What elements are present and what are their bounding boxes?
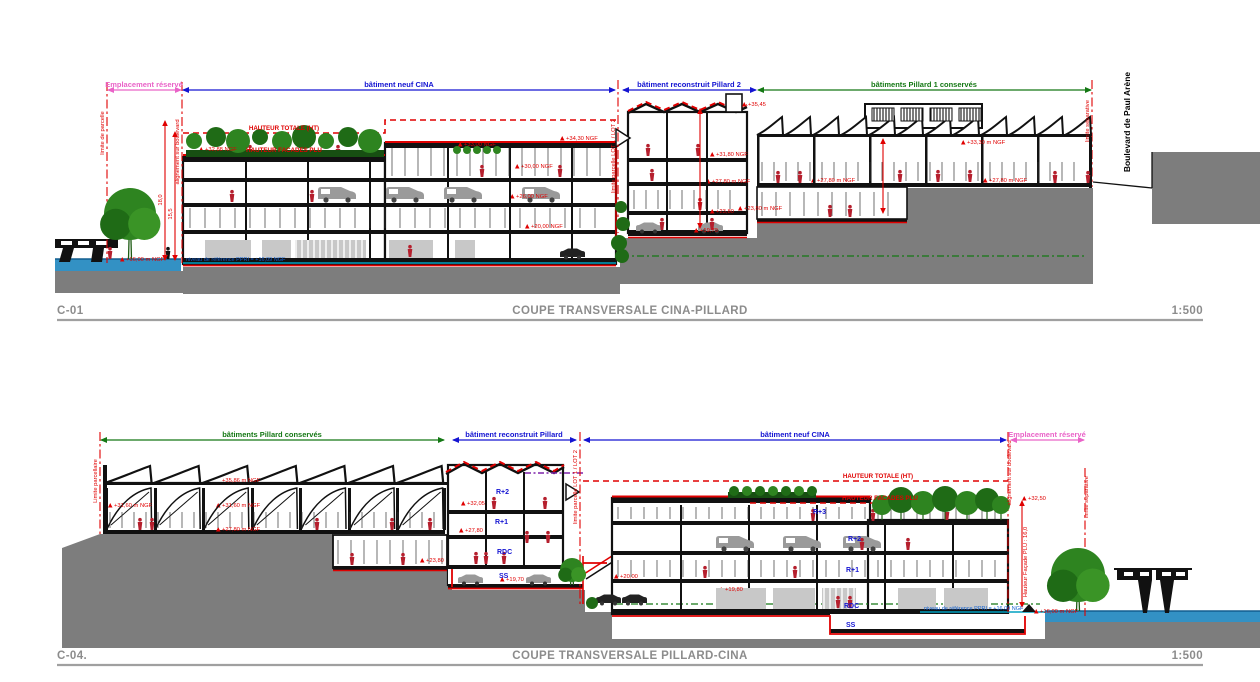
level-label: +35,45 (748, 102, 766, 108)
sawtooth-roof (981, 117, 1007, 135)
floor-label: R+1 (495, 519, 508, 526)
arrowhead-up (1019, 500, 1025, 506)
level-label: +27,80 m NGF (989, 178, 1028, 184)
storage-box (773, 588, 815, 609)
column (396, 488, 399, 530)
level-label: +19,70 (700, 228, 718, 234)
zone-label-pillard-conserves-bottom: bâtiments Pillard conservés (222, 430, 322, 439)
column (813, 137, 816, 183)
level-label: +34,30 NGF (566, 136, 598, 142)
roof-tree (186, 133, 202, 149)
limit-label: limite parcelle LOT 1 / LOT 2 (611, 119, 617, 193)
storage-box (205, 240, 251, 258)
floor-label: SS (846, 622, 856, 629)
level-label: +23,80 m NGF (744, 206, 783, 212)
terrain-top-boulevard-block (1152, 152, 1260, 224)
column (369, 157, 371, 258)
zone-label-pillard-reconstruit-bottom: bâtiment reconstruit Pillard (465, 430, 563, 439)
section-title-c04: COUPE TRANSVERSALE PILLARD-CINA (512, 650, 747, 662)
terrain-top-sheds-right (907, 188, 1093, 284)
cina-top-slab2 (183, 203, 616, 207)
limit-label: limite parcelle LOT 1 / LOT 2 (573, 450, 579, 524)
pillard-rec-rdcfloor (448, 565, 563, 569)
sawtooth-roof (813, 117, 839, 135)
terrain-top-left (55, 271, 183, 293)
level-label: +31,80 NGF (716, 152, 748, 158)
bush (611, 235, 627, 251)
hauteur-facades-label-bottom: HAUTEUR FACADES PLU (842, 495, 918, 502)
cina-bottom-slab2 (612, 551, 1008, 555)
sheds-lower-base (757, 219, 907, 222)
sheds-bottom-room-base (333, 566, 447, 570)
hauteur-totale-label-bottom: HAUTEUR TOTALE (HT) (843, 473, 913, 480)
cina-top-roofband-right (385, 143, 616, 148)
pillard-rec-slab1 (448, 510, 563, 514)
bush (586, 597, 598, 609)
arrowhead-right (750, 87, 757, 93)
floor-label: R+2 (496, 489, 509, 496)
cina-bottom-slab3 (612, 579, 1008, 583)
column (485, 472, 487, 565)
column (348, 488, 351, 530)
roof-shrub (453, 146, 461, 154)
pillard-rec-ssbase (448, 584, 583, 588)
dim-label: 18,0 (158, 194, 164, 205)
bush (615, 201, 627, 213)
sheds-top-hall (755, 135, 1092, 185)
hauteur-totale-label-top: HAUTEUR TOTALE (HT) (249, 125, 319, 132)
level-label: +31,60 m NGF (222, 503, 261, 509)
limit-label: alignement sur boulevard (1007, 440, 1013, 505)
arrowhead-up (162, 120, 168, 126)
column (680, 505, 682, 609)
level-label: +16,00 m NGF (126, 257, 165, 263)
cina-top-roofband-left (183, 157, 385, 162)
arrowhead-left (182, 87, 189, 93)
roof-tree (338, 127, 358, 147)
limit-label: limite séparative (1085, 100, 1091, 142)
level-label: +27,80 m NGF (712, 179, 751, 185)
zone-label-cina-top: bâtiment neuf CINA (364, 80, 434, 89)
roof-tree (206, 127, 226, 147)
cina-bottom-ss (830, 614, 1025, 630)
roof-shrub (781, 486, 791, 496)
roof-tree (932, 486, 958, 512)
arrowhead-left (622, 87, 629, 93)
sections-drawing: Emplacement réservé bâtiment neuf CINA b… (0, 0, 1260, 682)
ground-marker-bottom (1022, 604, 1036, 612)
arrowhead-left (100, 437, 107, 443)
level-label: +32,88 NGF (205, 147, 237, 153)
section-scale-c01: 1:500 (1172, 305, 1203, 317)
hauteur-facades-label-top: HAUTEUR FACADES PLU (246, 147, 322, 154)
sawtooth-roof (1009, 117, 1035, 135)
roof-tree (358, 129, 382, 153)
section-id-c01: C-01 (57, 305, 84, 317)
hatched-window (872, 108, 894, 121)
arrowhead-left (757, 87, 764, 93)
section-title-c01: COUPE TRANSVERSALE CINA-PILLARD (512, 305, 747, 317)
column (884, 525, 886, 609)
roof-shrub (807, 486, 817, 496)
floor-label: R+2 (848, 536, 861, 543)
level-label: +20,00 (620, 574, 638, 580)
arrowhead-right (438, 437, 445, 443)
storage-box (455, 240, 475, 258)
column (447, 143, 449, 258)
column (299, 488, 302, 530)
cina-top-slab3 (183, 230, 616, 234)
level-label: +27,80 m NGF (222, 527, 261, 533)
level-label: +19,70 (506, 577, 524, 583)
floor-label: RDC (844, 603, 859, 610)
terrain-top-center (183, 267, 620, 294)
floor-label: R+3 (813, 509, 826, 516)
column (523, 472, 525, 565)
level-flag (1022, 496, 1027, 501)
level-label: +33,30 m NGF (967, 140, 1006, 146)
zone-label-emplacement-reserve-top: Emplacement réservé (105, 80, 183, 89)
hauteur-facade-plu-label: Hauteur Façade PLU : 16,0 (1023, 527, 1029, 598)
cina-bottom-ssbase (830, 629, 1025, 633)
person-figure (108, 247, 113, 259)
arrowhead-right (1000, 437, 1007, 443)
level-label: +16,00 m NGF (1040, 609, 1079, 615)
road-slope-line (1093, 182, 1152, 188)
column (251, 488, 254, 530)
bridge-bottom-right (1114, 569, 1192, 613)
sheds-bottom-floor (105, 530, 445, 534)
section-id-c04: C-04. (57, 650, 87, 662)
level-label: +23,80 (426, 558, 444, 564)
limit-label: limite de parcelle (100, 111, 106, 155)
level-label: +26,00 NGF (516, 194, 548, 200)
zone-label-cina-bottom: bâtiment neuf CINA (760, 430, 830, 439)
arrowhead-right (609, 87, 616, 93)
level-label: +35,86 m NGF (222, 478, 261, 484)
level-label: +27,80 m NGF (817, 178, 856, 184)
floor-label: R+1 (846, 567, 859, 574)
bush (616, 217, 630, 231)
terrain-bottom-right (1045, 622, 1260, 648)
terrain-top-sheds-left (757, 222, 907, 284)
column (757, 137, 760, 183)
ppri-reference-top: niveau de référence PPRI = +16,09 NGF (186, 257, 286, 263)
sawtooth-roof (1037, 117, 1063, 135)
street-label: Boulevard de Paul Arène (1122, 72, 1132, 173)
ppri-reference-bottom: niveau de référence PPRI = +16,09 NGF (924, 606, 1024, 612)
column (154, 488, 157, 530)
limit-label: limite séparative (1084, 476, 1090, 518)
pillard2-stair-overrun (726, 94, 742, 112)
limit-label: alignement sur boulevard (175, 119, 181, 184)
arrowhead-left (452, 437, 459, 443)
column (666, 112, 668, 230)
cina-bottom-roofband-left (612, 498, 870, 503)
hatched-window (901, 108, 923, 121)
cina-bottom-slab1 (612, 521, 1008, 525)
sawtooth-roof (785, 117, 811, 135)
level-label: +30,00 NGF (521, 164, 553, 170)
terrain-top-pillard2 (620, 238, 757, 284)
hatched-window (930, 108, 952, 121)
column (925, 137, 928, 183)
pillard-rec-slab2 (448, 535, 563, 539)
zone-label-pillard2-top: bâtiment reconstruit Pillard 2 (637, 80, 741, 89)
roof-shrub (729, 486, 739, 496)
zone-label-pillard1-top: bâtiments Pillard 1 conservés (871, 80, 977, 89)
column (202, 488, 205, 530)
level-flag (560, 136, 565, 141)
zone-label-emplacement-reserve-bottom: Emplacement réservé (1008, 430, 1086, 439)
cina-top-slab1 (183, 178, 616, 182)
column (571, 143, 573, 258)
level-label: +31,60 m NGF (114, 503, 153, 509)
storage-box (262, 240, 291, 258)
arrowhead-right (570, 437, 577, 443)
floor-label: RDC (497, 549, 512, 556)
column (706, 112, 708, 230)
level-label: +20,00 NGF (531, 224, 563, 230)
pillard2-slab1 (628, 158, 747, 162)
column (105, 488, 108, 530)
sawtooth-roof (841, 117, 867, 135)
sawtooth-roof (757, 117, 783, 135)
roof-shrub (768, 486, 778, 496)
level-label: +32,05 (467, 501, 485, 507)
arrowhead-left (583, 437, 590, 443)
tree (1047, 548, 1110, 611)
section-scale-c04: 1:500 (1172, 650, 1203, 662)
column (443, 488, 446, 530)
storage-box (295, 240, 366, 258)
bush (615, 249, 629, 263)
roof-shrub (755, 486, 765, 496)
roof-shrub (742, 486, 752, 496)
dim-label: 15,5 (168, 208, 174, 219)
arrowhead-right (1085, 87, 1092, 93)
column (816, 505, 818, 609)
hatched-window (959, 108, 981, 121)
roof-shrub (794, 486, 804, 496)
drawing-sheet: Emplacement réservé bâtiment neuf CINA b… (0, 0, 1260, 682)
limit-label: Limite parcellaire (93, 459, 99, 503)
level-label: +32,50 (1028, 496, 1046, 502)
level-label: +33,00 NGF (464, 142, 496, 148)
level-label: +23,80 (716, 209, 734, 215)
level-label: +19,80 (725, 587, 743, 593)
level-label: +27,80 (465, 528, 483, 534)
